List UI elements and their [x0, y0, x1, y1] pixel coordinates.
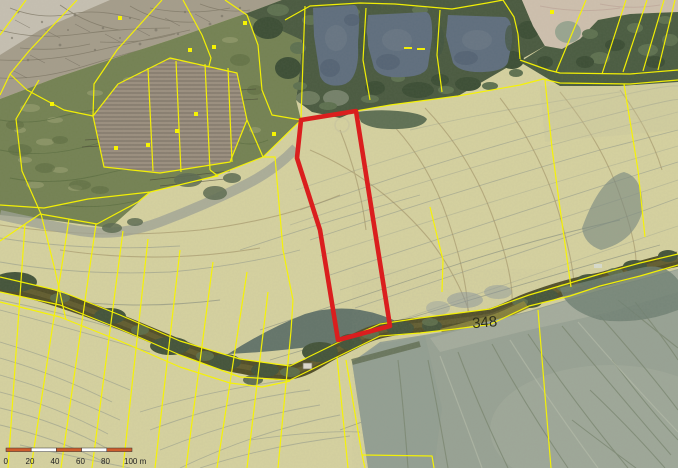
svg-text:100 m: 100 m: [124, 457, 147, 466]
svg-text:80: 80: [101, 457, 110, 466]
svg-text:348: 348: [471, 313, 497, 332]
svg-text:20: 20: [26, 457, 35, 466]
svg-text:60: 60: [76, 457, 85, 466]
svg-text:40: 40: [51, 457, 60, 466]
svg-text:0: 0: [4, 457, 9, 466]
